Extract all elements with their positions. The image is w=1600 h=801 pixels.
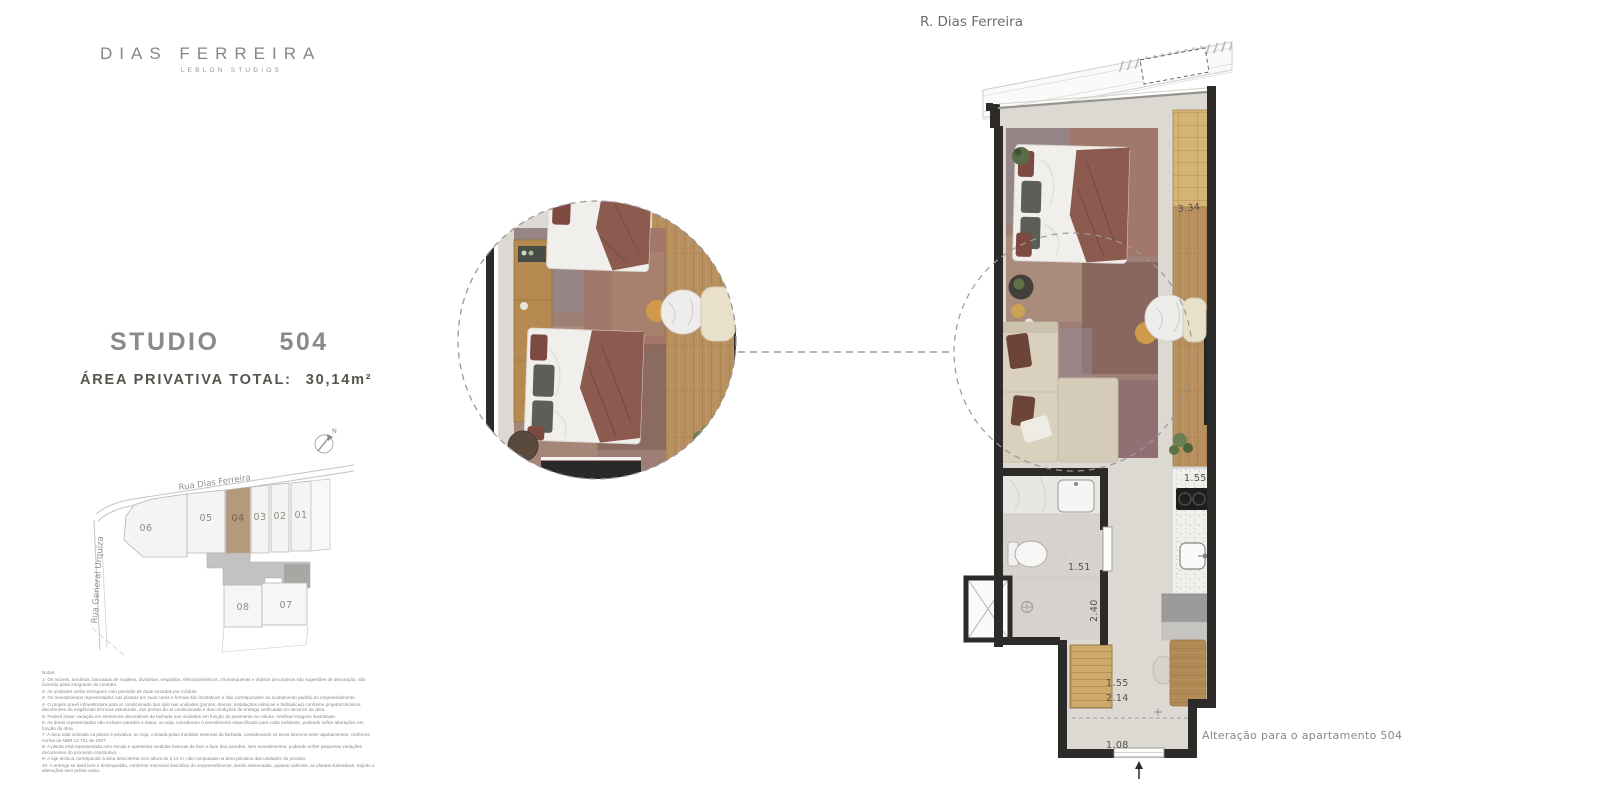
wardrobe-closet <box>1173 110 1210 207</box>
unit-number: 504 <box>279 328 328 357</box>
brand-tagline: LEBLON STUDIOS <box>100 67 282 74</box>
lot-label-07: 07 <box>279 600 292 611</box>
lot-label-03: 03 <box>253 512 266 523</box>
detail-chair <box>701 287 735 341</box>
notes-line: 7- A área total indicada na planta é pri… <box>42 732 377 743</box>
area-value: 30,14m² <box>306 372 373 388</box>
dim-bath-width: 1.51 <box>1068 562 1091 573</box>
bed <box>1013 145 1130 264</box>
detail-pouf <box>508 431 538 461</box>
notes-line: 3- Os revestimentos representados nas pl… <box>42 695 377 701</box>
lot-label-04: 04 <box>231 513 244 524</box>
entry-arrow <box>1135 761 1143 779</box>
kitchen-counter <box>1172 468 1212 594</box>
plan-annotation: Alteração para o apartamento 504 <box>1202 729 1402 742</box>
notes-line: 9- A laje técnica corresponde à área des… <box>42 756 377 762</box>
sofa-pillow <box>1006 333 1033 370</box>
compass-n-label: N <box>332 427 337 435</box>
notes-line: 5- Poderá haver variação em elementos de… <box>42 714 377 720</box>
bed-pillow <box>1021 181 1042 214</box>
lot-label-06: 06 <box>139 523 152 534</box>
legal-notes: Notas: 1- Os móveis, armários, bancadas … <box>42 670 377 775</box>
refrigerator <box>1162 594 1212 622</box>
hall-table <box>1170 640 1206 706</box>
plan-street-label: R. Dias Ferreira <box>920 14 1023 30</box>
notes-line: 4- O projeto prevê infraestrutura para a… <box>42 702 377 713</box>
dim-hall-width: 1.55 <box>1106 678 1129 689</box>
dim-kitchen: 1.55 <box>1184 473 1207 484</box>
notes-line: 10- A entrega se dará livre e desimpedid… <box>42 763 377 774</box>
toilet <box>1008 541 1047 567</box>
dim-bath-depth: 2.40 <box>1089 599 1100 622</box>
lot-06 <box>124 494 187 557</box>
plant-detail <box>1015 149 1022 156</box>
bathroom-door <box>1103 527 1112 571</box>
site-map-lots <box>124 479 330 652</box>
brand-name: DIAS FERREIRA <box>100 44 282 64</box>
detail-tv-sideboard <box>541 461 641 483</box>
detail-bed-top <box>546 186 651 272</box>
plant <box>1012 147 1030 165</box>
unit-type-label: STUDIO <box>110 328 219 357</box>
detail-marble-table <box>661 290 705 334</box>
lot-edge <box>311 479 330 551</box>
dim-hall-depth: 2.14 <box>1106 693 1129 704</box>
notes-line: 8- A planta está representada sem escala… <box>42 744 377 755</box>
notes-line: 6- As áreas representadas não incluem pa… <box>42 720 377 731</box>
unit-title: STUDIO 504 <box>110 328 329 357</box>
site-location-map: Rua Dias Ferreira Rua General Urquiza 06… <box>85 412 355 657</box>
notes-line: 1- Os móveis, armários, bancadas de made… <box>42 677 377 688</box>
compass-icon: N <box>315 427 337 453</box>
lot-label-01: 01 <box>294 510 307 521</box>
shaft-duct <box>966 578 1010 640</box>
detail-bed-main <box>524 328 644 444</box>
area-label: ÁREA PRIVATIVA TOTAL: <box>80 372 292 388</box>
detail-zoom-circle <box>458 186 742 485</box>
dim-entry-door: 1.08 <box>1106 740 1129 751</box>
unit-area: ÁREA PRIVATIVA TOTAL: 30,14m² <box>80 372 372 388</box>
brand-logo: DIAS FERREIRA LEBLON STUDIOS <box>100 44 282 74</box>
floorplan-brochure-page: DIAS FERREIRA LEBLON STUDIOS STUDIO 504 … <box>0 0 1600 801</box>
lot-label-05: 05 <box>199 513 212 524</box>
notes-title: Notas: <box>42 670 377 676</box>
floor-plan-graphics: R. Dias Ferreira <box>440 0 1600 801</box>
lot-label-08: 08 <box>236 602 249 613</box>
notes-line: 2- As unidades serão entregues com previ… <box>42 689 377 695</box>
dining-chair <box>1183 298 1206 342</box>
lot-label-02: 02 <box>273 511 286 522</box>
cooktop <box>1176 488 1208 510</box>
bed-pillow <box>1016 233 1033 257</box>
notes-list: 1- Os móveis, armários, bancadas de made… <box>42 677 377 774</box>
